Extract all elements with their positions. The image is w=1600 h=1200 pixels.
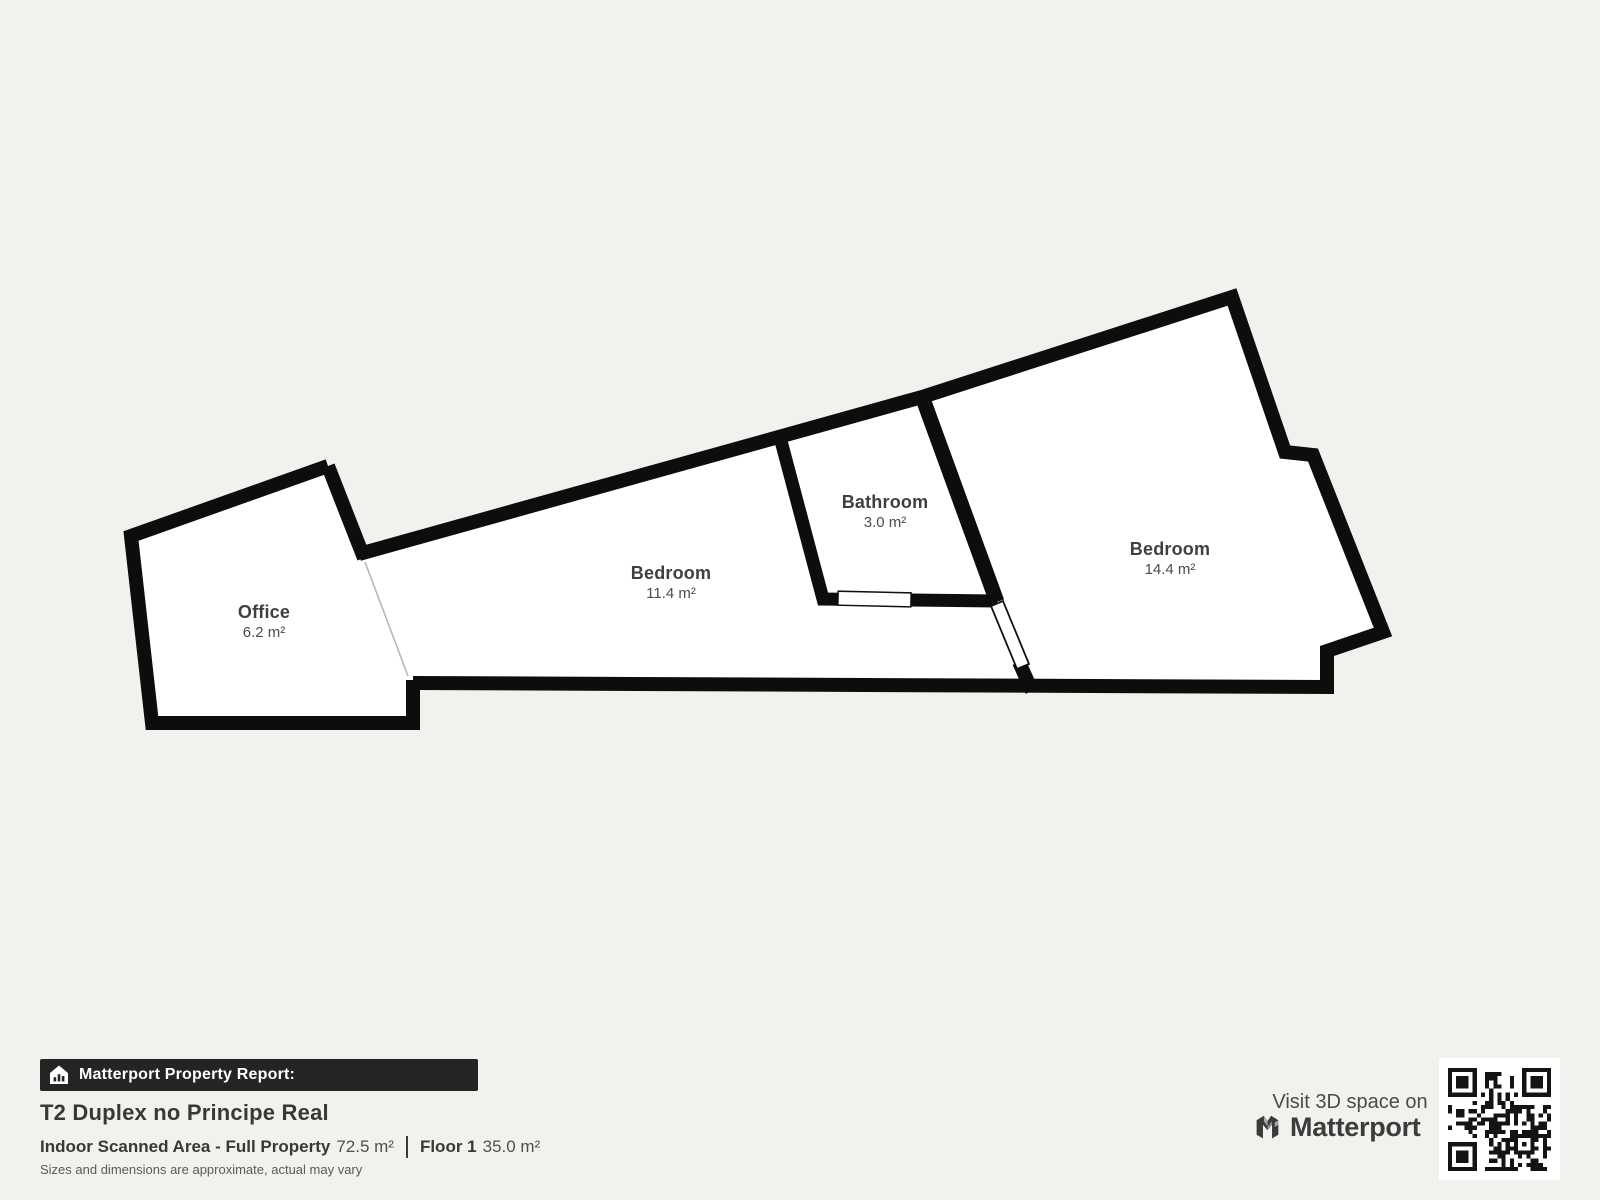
banner-label: Matterport Property Report: [79,1066,295,1084]
floor-label: Floor 1 [420,1137,477,1157]
building-icon [49,1065,69,1085]
room-floors [131,297,1383,723]
floorplan-svg [0,0,1600,1200]
room-area: 3.0 m² [842,514,929,532]
room-label-bathroom: Bathroom 3.0 m² [842,492,929,532]
disclaimer: Sizes and dimensions are approximate, ac… [40,1162,362,1177]
matterport-wordmark: Matterport [1290,1112,1421,1143]
bathroom-door-opening [838,591,911,607]
property-report-page: Office 6.2 m² Bedroom 11.4 m² Bathroom 3… [0,0,1600,1200]
room-area: 6.2 m² [238,624,290,642]
matterport-logo-icon [1253,1113,1282,1142]
room-area: 14.4 m² [1130,561,1210,579]
qr-code-pattern [1448,1068,1551,1171]
room-name: Bedroom [631,563,711,583]
floor-value: 35.0 m² [483,1137,541,1157]
stats-divider [406,1136,408,1158]
scanned-area-label: Indoor Scanned Area - Full Property [40,1137,330,1157]
room-label-bedroom-mid: Bedroom 11.4 m² [631,563,711,603]
report-title: T2 Duplex no Principe Real [40,1100,329,1126]
room-label-bedroom-right: Bedroom 14.4 m² [1130,539,1210,579]
room-label-office: Office 6.2 m² [238,602,290,642]
qr-code [1439,1058,1560,1180]
report-stats: Indoor Scanned Area - Full Property 72.5… [40,1136,540,1158]
report-banner: Matterport Property Report: [40,1059,478,1091]
room-name: Office [238,602,290,622]
room-name: Bedroom [1130,539,1210,559]
matterport-logo: Matterport [1253,1112,1421,1143]
visit-3d-text: Visit 3D space on [1272,1091,1427,1114]
room-name: Bathroom [842,492,929,512]
scanned-area-value: 72.5 m² [336,1137,394,1157]
office-floor [131,466,413,723]
room-area: 11.4 m² [631,585,711,603]
